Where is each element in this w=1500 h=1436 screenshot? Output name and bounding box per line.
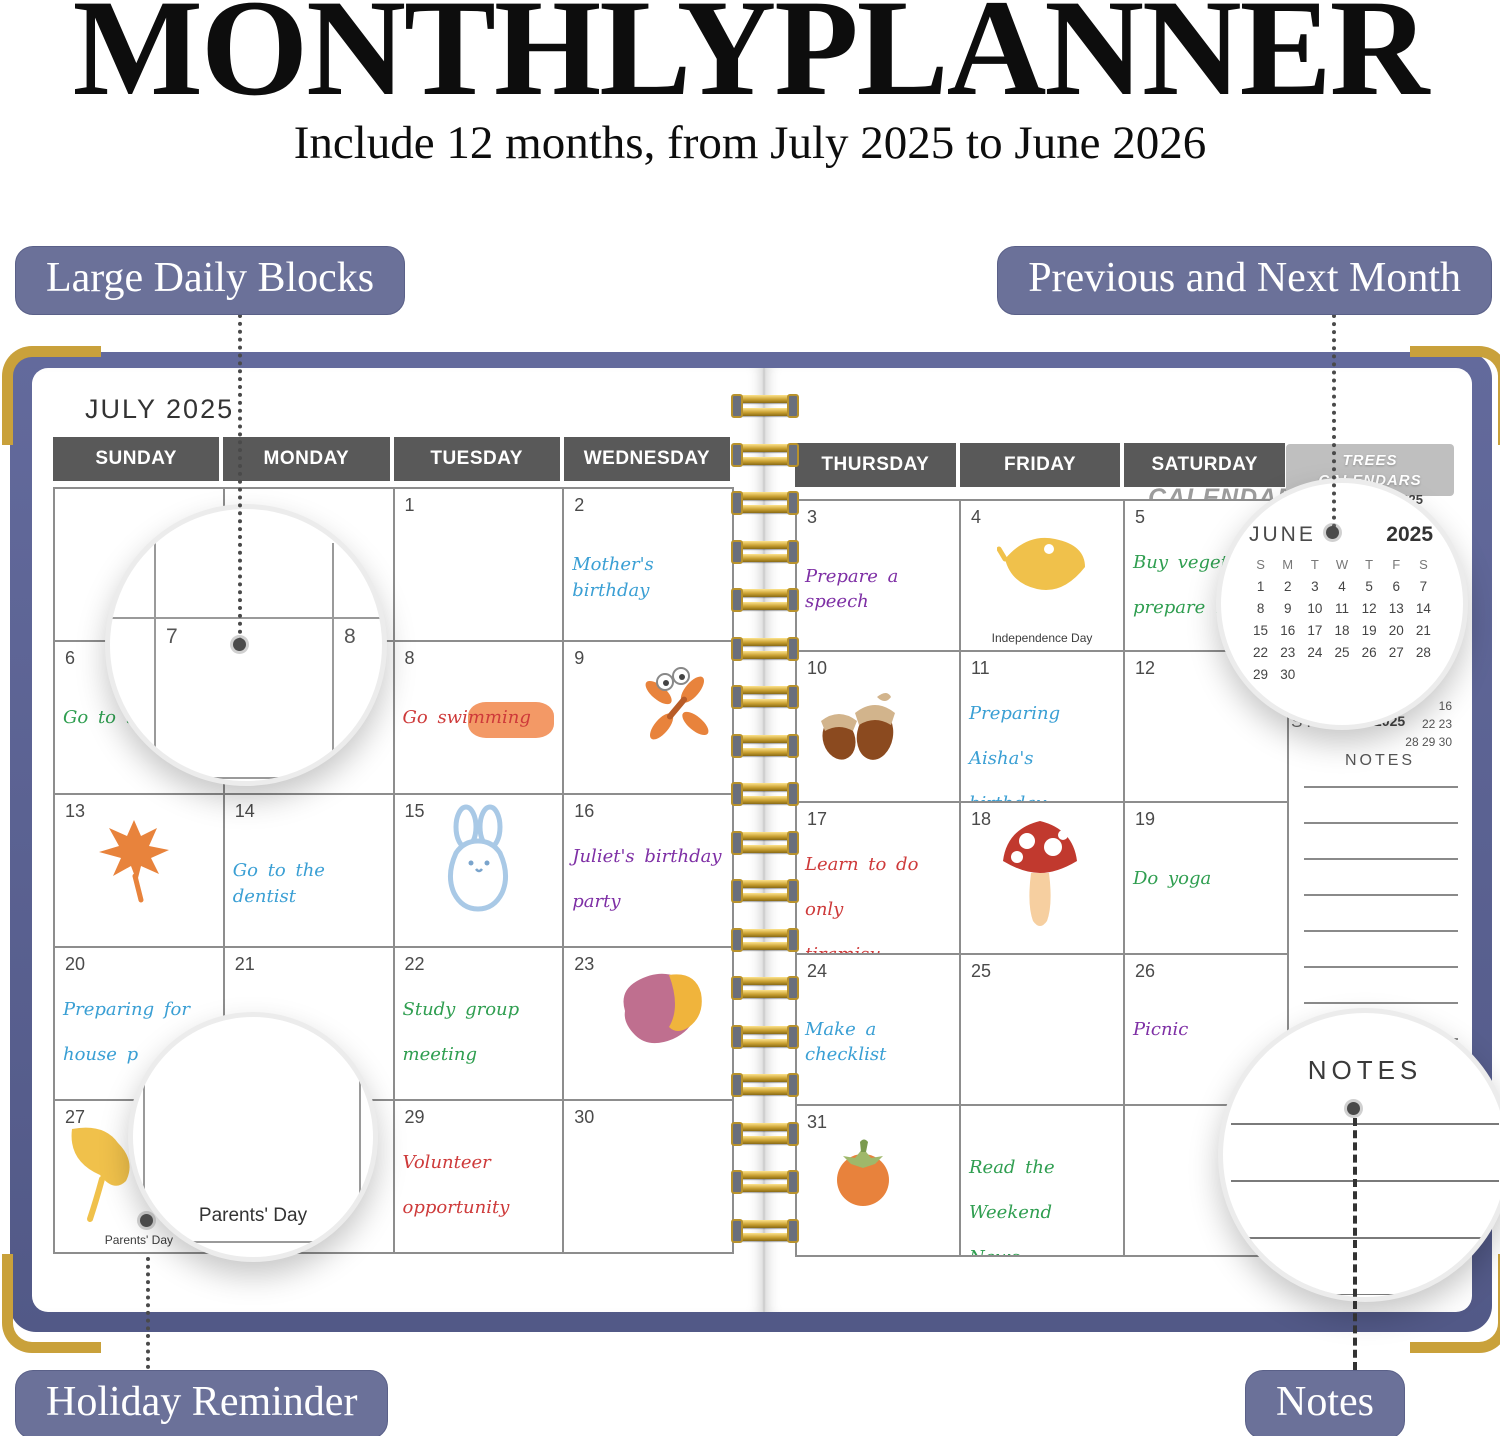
day-number: 22 [405,954,425,975]
mini-calendar-weekday: W [1328,557,1355,572]
day-number: 23 [574,954,594,975]
mini-calendar-day: 21 [1410,623,1437,638]
day-number: 10 [807,658,827,679]
note-line: Preparing Aisha's [969,703,1060,769]
yellow-leaf-illustration [997,531,1089,604]
day-number: 5 [1135,507,1145,528]
spiral-ring [731,1120,799,1148]
calendar-cell: 4Independence Day [961,501,1123,650]
calendar-cell: 23 [564,948,732,1099]
mini-calendar-day: 22 [1247,645,1274,660]
mini-calendar-day: 24 [1301,645,1328,660]
magnified-holiday-label: Parents' Day [133,1205,373,1227]
spiral-ring [731,829,799,857]
day-number: 30 [574,1107,594,1128]
august-days-row: 28 29 30 [1388,733,1452,751]
mini-calendar-day: 17 [1301,623,1328,638]
pointer-dot [1326,526,1339,539]
spiral-ring [731,877,799,905]
handwritten-note: Go swimming [403,705,559,730]
calendar-cell: 13 [55,795,223,946]
product-image: MONTHLYPLANNER Include 12 months, from J… [0,0,1500,1436]
calendar-cell: 24Make a checklist [797,955,959,1104]
page-title: MONTHLYPLANNER [0,0,1500,121]
magnifier-holiday: Parents' Day [128,1012,378,1262]
note-line: Learn to do only [805,854,918,920]
calendar-cell: 29Volunteeropportunity [395,1101,563,1252]
handwritten-note: Go to the dentist [233,858,389,908]
weekday-header-thursday: THURSDAY [795,443,956,487]
callout-previous-next-month: Previous and Next Month [997,246,1492,315]
magnifier-notes: NOTES [1218,1008,1500,1302]
mini-calendar-day: 9 [1274,601,1301,616]
handwritten-note: Volunteeropportunity [403,1140,559,1230]
note-line: Make a checklist [805,1019,886,1065]
spiral-ring [731,780,799,808]
weekday-header-wednesday: WEDNESDAY [564,437,730,481]
mini-calendar-day: 29 [1247,667,1274,682]
note-line: Juliet's birthday [572,846,721,867]
august-days-row: 22 23 [1388,715,1452,733]
day-number: 20 [65,954,85,975]
day-number: 13 [65,801,85,822]
note-line: Do yoga [1133,868,1211,889]
notes-ruled-lines [1231,1123,1499,1295]
calendar-cell: Read the WeekendNews [961,1106,1123,1255]
mini-calendar-day: 4 [1328,579,1355,594]
day-number: 8 [405,648,415,669]
handwritten-note: Make a checklist [805,1017,955,1067]
mini-calendar-day: 30 [1274,667,1301,682]
cell-border-line [110,617,382,619]
magnified-day-number: 8 [344,625,356,649]
calendar-cell: 15 [395,795,563,946]
day-number: 3 [807,507,817,528]
mini-calendar-day: 10 [1301,601,1328,616]
mini-calendar-day [1301,667,1328,682]
note-line: tiramisu [805,944,881,952]
pointer-dot [140,1214,153,1227]
spiral-ring [731,1023,799,1051]
calendar-cell: 22Study groupmeeting [395,948,563,1099]
spiral-ring [731,974,799,1002]
spiral-ring [731,683,799,711]
day-number: 15 [405,801,425,822]
mini-calendar-day: 11 [1328,601,1355,616]
callout-holiday-reminder: Holiday Reminder [15,1370,388,1436]
day-number: 26 [1135,961,1155,982]
cell-border-line [120,777,372,779]
mini-calendar-year: 2025 [1386,523,1433,547]
calendar-cell: 19Do yoga [1125,803,1287,952]
magnifier-june-calendar: JUNE 2025 SMTWTFS12345678910111213141516… [1216,478,1468,730]
persimmon-illustration [826,1136,900,1215]
handwritten-note: Picnic [1133,1017,1283,1042]
day-number: 31 [807,1112,827,1133]
weekday-header-tuesday: TUESDAY [394,437,560,481]
note-line: Go swimming [403,707,531,728]
note-line: house p [63,1044,138,1065]
calendar-cell: 18 [961,803,1123,952]
mini-calendar-day: 15 [1247,623,1274,638]
day-number: 12 [1135,658,1155,679]
mini-calendar-weekday: T [1356,557,1383,572]
mini-calendar-weekday: S [1247,557,1274,572]
day-number: 24 [807,961,827,982]
spiral-ring [731,1071,799,1099]
dotted-connector [1332,314,1336,528]
spiral-ring [731,1217,799,1245]
note-line: News [969,1247,1020,1255]
calendar-cell: 16Juliet's birthdayparty [564,795,732,946]
sweet-potato-illustration [611,963,707,1056]
mini-calendar-day: 16 [1274,623,1301,638]
dashed-connector [1353,1118,1357,1370]
mini-calendar-day: 27 [1383,645,1410,660]
weekday-header-row: SUNDAY MONDAY TUESDAY WEDNESDAY [53,437,730,481]
cell-border-line [133,1241,373,1243]
note-line: Go to the dentist [233,860,325,906]
calendar-cell: 2Mother's birthday [564,489,732,640]
calendar-cell: 30 [564,1101,732,1252]
mini-calendar-weekday: T [1301,557,1328,572]
handwritten-note: Learn to do onlytiramisu [805,842,955,952]
mini-calendar-day: 26 [1356,645,1383,660]
spiral-ring [731,489,799,517]
calendar-cell: 10 [797,652,959,801]
dotted-connector [238,314,242,642]
mini-calendar-day [1383,667,1410,682]
pointer-dot [233,638,246,651]
weekday-header-sunday: SUNDAY [53,437,219,481]
day-number: 9 [574,648,584,669]
day-number: 19 [1135,809,1155,830]
handwritten-note: Do yoga [1133,866,1283,891]
note-line: Picnic [1133,1019,1188,1040]
mini-calendar-day: 20 [1383,623,1410,638]
spiral-ring [731,441,799,469]
mini-calendar-day: 5 [1356,579,1383,594]
calendar-cell: 3Prepare a speech [797,501,959,650]
mini-calendar-day: 1 [1247,579,1274,594]
note-line: Preparing for [63,999,190,1020]
day-number: 25 [971,961,991,982]
day-number: 18 [971,809,991,830]
magnified-notes-label: NOTES [1223,1055,1500,1086]
note-line: opportunity [403,1197,510,1218]
mushroom-illustration [997,809,1083,936]
handwritten-note: Juliet's birthdayparty [572,834,728,924]
cell-border-line [332,543,334,779]
note-line: Prepare a speech [805,566,898,612]
maple-leaf-illustration [95,816,173,909]
day-number: 4 [971,507,981,528]
mini-calendar-weekday: F [1383,557,1410,572]
mini-calendar-day: 18 [1328,623,1355,638]
day-number: 1 [405,495,415,516]
magnifier-daily-blocks: 7 8 [105,504,387,786]
note-line: birthday present [969,793,1046,801]
acorns-illustration [813,685,907,770]
weekday-header-friday: FRIDAY [960,443,1121,487]
note-line: meeting [403,1044,477,1065]
day-number: 11 [971,658,990,679]
spiral-ring [731,586,799,614]
day-number: 14 [235,801,255,822]
spiral-ring [731,926,799,954]
handwritten-note: Prepare a speech [805,564,955,614]
calendar-cell: 8Go swimming [395,642,563,793]
mini-calendar-month: JUNE [1249,523,1316,547]
calendar-cell: 14Go to the dentist [225,795,393,946]
mini-calendar-day [1356,667,1383,682]
handwritten-note: Preparing Aisha'sbirthday present [969,691,1119,801]
bunny-illustration [438,803,518,920]
mini-calendar-day: 12 [1356,601,1383,616]
day-number: 29 [405,1107,425,1128]
calendar-cell: 31 [797,1106,959,1255]
dotted-connector [146,1257,150,1369]
notes-section-label: NOTES [1300,752,1460,770]
month-title: JULY 2025 [85,394,234,425]
weekday-header-monday: MONDAY [223,437,389,481]
spiral-ring [731,635,799,663]
dragonfly-illustration [635,666,719,755]
right-calendar-grid: 3Prepare a speech4Independence Day5Buy v… [795,499,1289,1257]
calendar-cell: 11Preparing Aisha'sbirthday present [961,652,1123,801]
mini-calendar-weekday: M [1274,557,1301,572]
callout-notes: Notes [1245,1370,1405,1436]
calendar-cell: 1 [395,489,563,640]
brand-tab-line1: TREES [1286,451,1454,471]
handwritten-note: Study groupmeeting [403,987,559,1077]
day-number: 21 [235,954,255,975]
note-line: Mother's birthday [572,554,654,600]
mini-calendar-day: 23 [1274,645,1301,660]
mini-calendar-day: 19 [1356,623,1383,638]
day-number: 17 [807,809,827,830]
spiral-ring [731,732,799,760]
spiral-ring [731,1168,799,1196]
mini-calendar-day: 7 [1410,579,1437,594]
calendar-cell: 25 [961,955,1123,1104]
note-line: Volunteer [403,1152,491,1173]
day-number: 6 [65,648,75,669]
mini-calendar-day: 2 [1274,579,1301,594]
mini-calendar-grid: SMTWTFS123456789101112131415161718192021… [1247,557,1437,682]
weekday-header-row: THURSDAY FRIDAY SATURDAY [795,443,1285,487]
mini-calendar-day: 14 [1410,601,1437,616]
calendar-cell: 17Learn to do onlytiramisu [797,803,959,952]
magnified-day-number: 7 [166,625,178,649]
page-subtitle: Include 12 months, from July 2025 to Jun… [0,116,1500,170]
spiral-ring [731,392,799,420]
weekday-header-saturday: SATURDAY [1124,443,1285,487]
mini-calendar-day: 25 [1328,645,1355,660]
spiral-ring [731,538,799,566]
pointer-dot [1347,1102,1360,1115]
handwritten-note: Mother's birthday [572,552,728,602]
note-line: Read the Weekend [969,1157,1055,1223]
mini-calendar-day: 6 [1383,579,1410,594]
mini-calendar-day: 8 [1247,601,1274,616]
calendar-cell: 9 [564,642,732,793]
note-line: Study group [403,999,520,1020]
day-number: 2 [574,495,584,516]
note-line: party [572,891,620,912]
mini-calendar-day: 3 [1301,579,1328,594]
mini-calendar-day: 13 [1383,601,1410,616]
cell-border-line [154,529,156,779]
mini-calendar-day [1328,667,1355,682]
day-number: 16 [574,801,594,822]
callout-large-daily-blocks: Large Daily Blocks [15,246,405,315]
handwritten-note: Read the WeekendNews [969,1145,1119,1255]
mini-calendar-day: 28 [1410,645,1437,660]
mini-calendar-day [1410,667,1437,682]
holiday-label: Independence Day [961,631,1123,645]
mini-calendar-weekday: S [1410,557,1437,572]
